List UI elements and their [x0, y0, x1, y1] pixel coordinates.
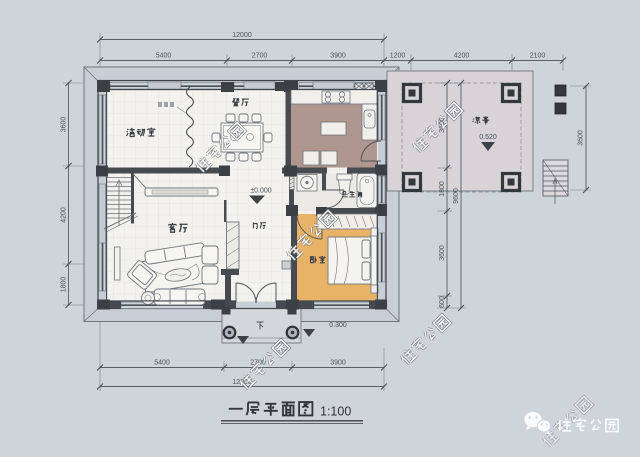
svg-text:1:100: 1:100 [320, 405, 351, 419]
svg-text:600: 600 [439, 296, 446, 308]
svg-text:3600: 3600 [578, 130, 585, 146]
svg-text:4200: 4200 [454, 53, 470, 60]
svg-text:0.520: 0.520 [479, 134, 497, 141]
svg-text:1800: 1800 [61, 277, 68, 293]
svg-text:3900: 3900 [330, 53, 346, 60]
svg-text:2100: 2100 [530, 53, 546, 60]
svg-text:4200: 4200 [61, 207, 68, 223]
svg-text:0.300: 0.300 [329, 322, 347, 329]
svg-text:1200: 1200 [390, 53, 406, 60]
svg-text:5400: 5400 [156, 53, 172, 60]
svg-text:1800: 1800 [439, 181, 446, 197]
svg-text:3900: 3900 [330, 360, 346, 367]
svg-text:±0.000: ±0.000 [250, 188, 271, 195]
svg-text:3600: 3600 [61, 117, 68, 133]
svg-text:12000: 12000 [232, 32, 252, 39]
svg-text:3600: 3600 [439, 245, 446, 261]
svg-text:5400: 5400 [154, 360, 170, 367]
svg-text:9600: 9600 [453, 188, 460, 204]
svg-text:2700: 2700 [252, 53, 268, 60]
